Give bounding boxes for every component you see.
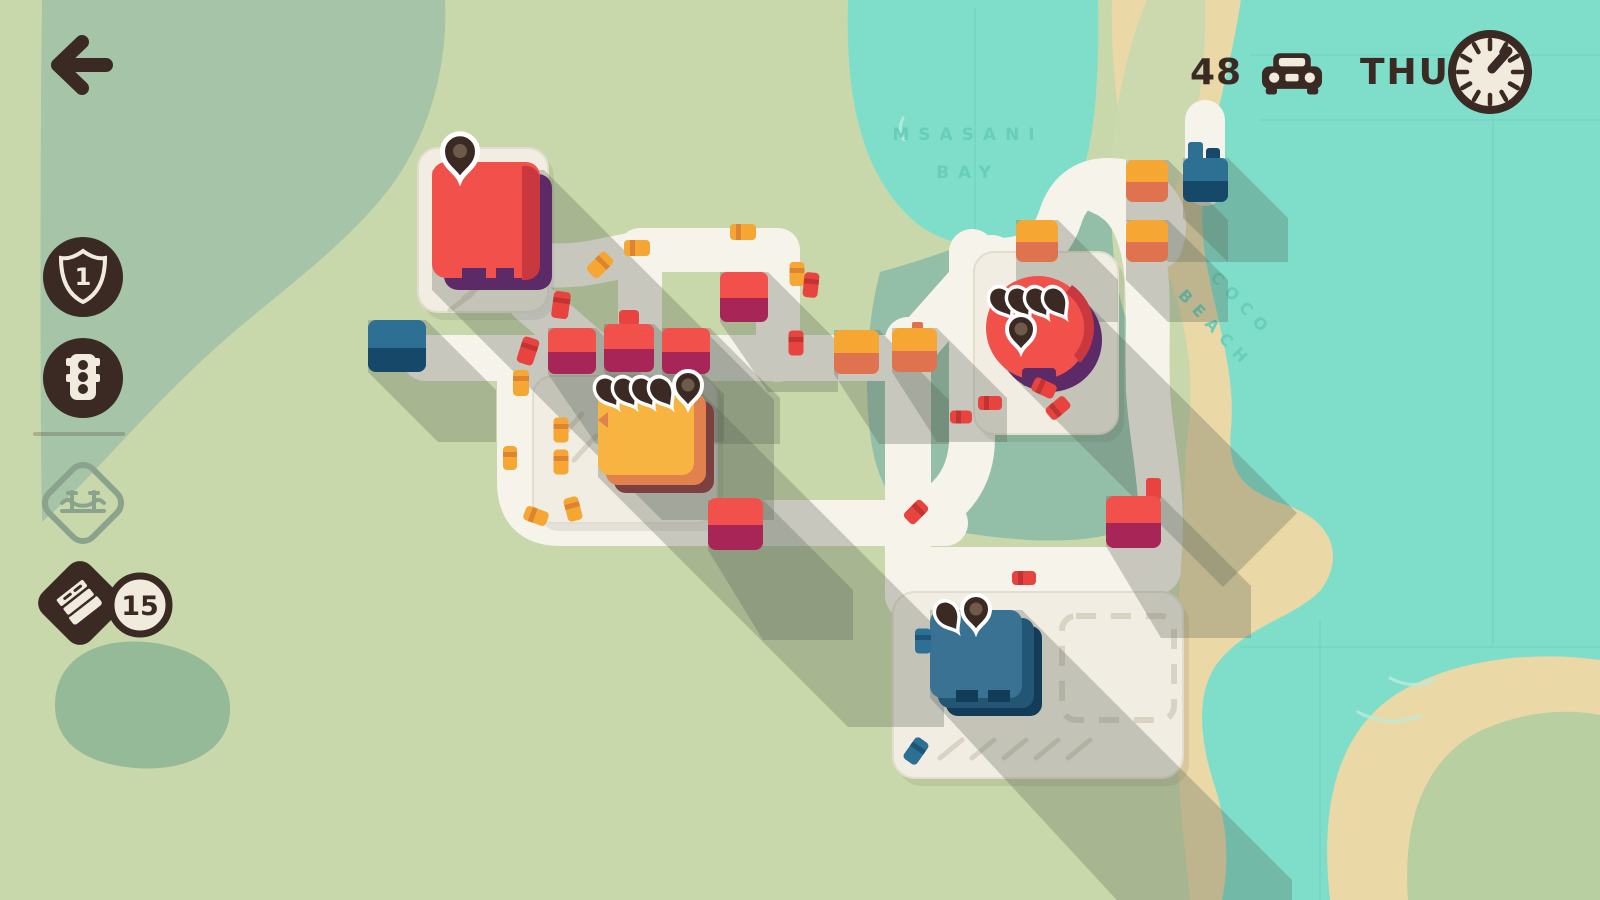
house-orange-tr2 [1126,160,1168,202]
car-red [950,411,972,424]
day-indicator: THU [1360,52,1450,93]
house-red-row3 [662,328,710,374]
house-red-southA [708,498,763,550]
game-map[interactable]: MSASANI BAY COCO BEACH [0,0,1600,900]
house-orange-tr1 [1016,220,1058,262]
road-tiles-count: 15 [121,591,159,622]
car-red [1012,571,1036,585]
house-orange-main1 [834,330,879,374]
car-counter: 48 [1190,42,1332,102]
highway-count: 1 [75,263,92,291]
car-orange [554,418,569,443]
highway-button[interactable]: 1 [43,237,123,317]
car-orange [554,450,569,475]
car-orange [790,262,805,286]
car-orange [624,240,650,256]
car-orange [730,224,756,240]
bridge-button-diamond [39,459,127,547]
house-blue-west [368,320,426,372]
road-tiles-button[interactable]: 15 [30,555,176,655]
bridge-icon [62,492,104,511]
back-arrow-icon [36,28,120,102]
bay-label-line2: BAY [936,163,1000,183]
car-red [978,396,1002,410]
clock [1446,28,1534,116]
traffic-light-button[interactable] [43,338,123,418]
back-button[interactable] [36,28,120,102]
car-orange [503,446,517,470]
car-blue [915,629,931,654]
car-icon [1252,42,1332,102]
clock-icon [1446,28,1534,116]
car-red [789,331,804,356]
house-red-row1 [548,328,596,374]
bridge-button-disabled[interactable] [38,458,128,548]
house-orange-main2 [892,322,937,372]
sidebar-divider [33,432,125,436]
building-orange [590,371,714,493]
house-orange-tr3 [1126,220,1168,262]
car-red [802,272,820,298]
car-count-value: 48 [1190,52,1242,93]
game-screen: MSASANI BAY COCO BEACH [0,0,1600,900]
house-red-loop [720,272,768,322]
traffic-light-icon [66,354,100,400]
car-orange [513,370,529,396]
bay-label-line1: MSASANI [892,125,1043,145]
